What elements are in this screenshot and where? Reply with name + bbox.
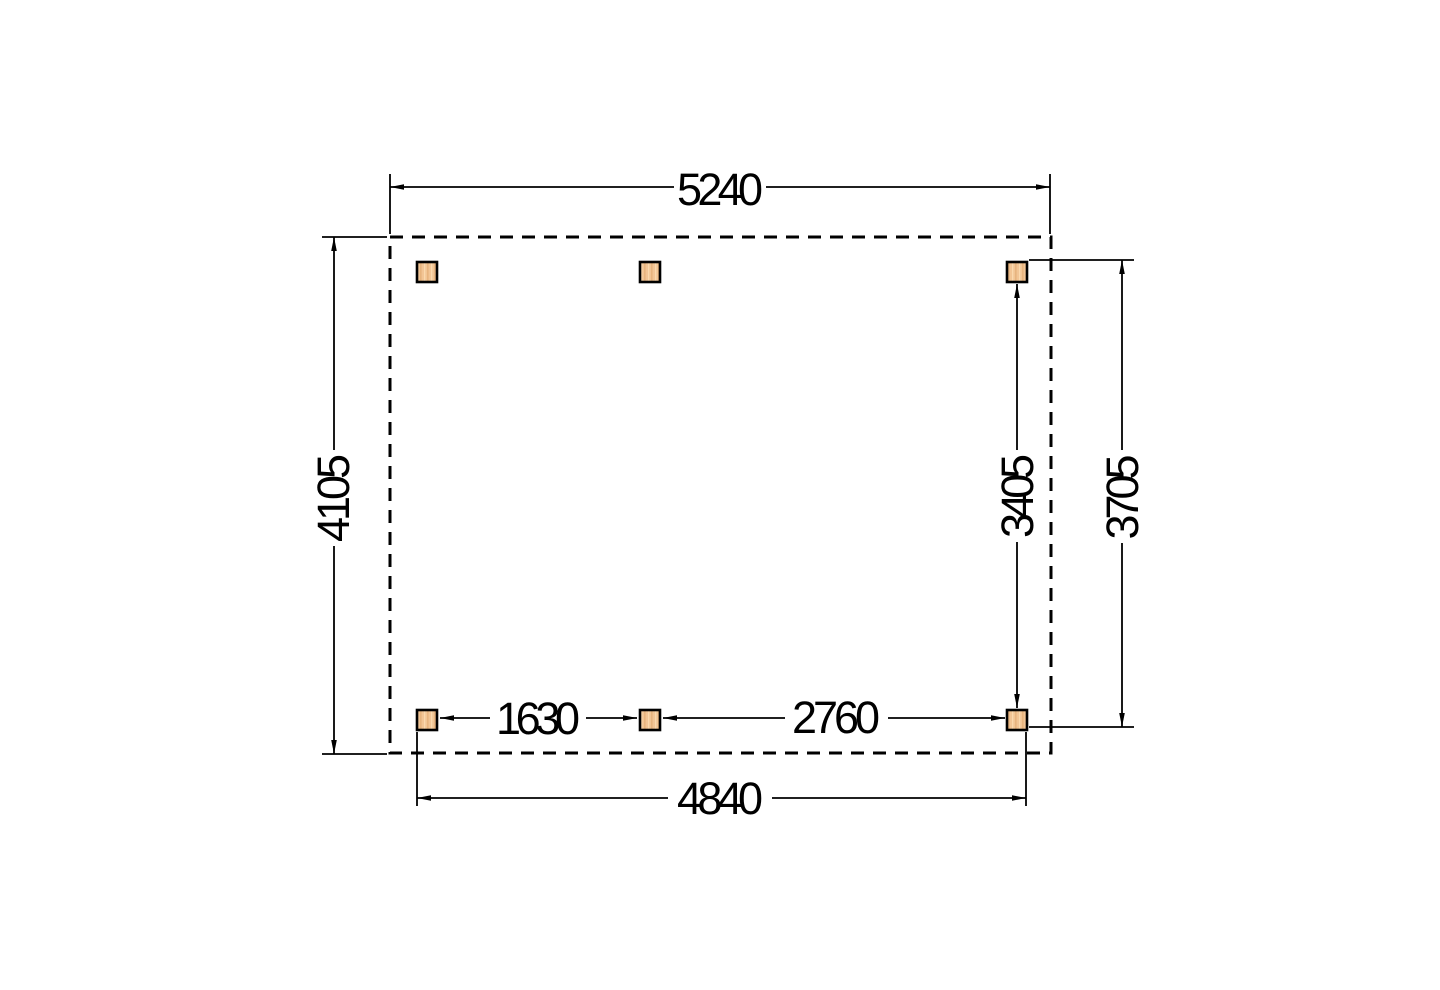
arrow-left-icon	[663, 715, 677, 721]
dim-label-bottom-width: 4840	[677, 773, 763, 824]
dim-label-left-depth: 4105	[308, 454, 359, 542]
post	[1007, 710, 1027, 730]
dim-label-top-width: 5240	[677, 164, 763, 215]
post	[640, 262, 660, 282]
arrow-right-icon	[623, 715, 637, 721]
post	[640, 710, 660, 730]
dim-label-right-post-span: 3405	[992, 454, 1043, 538]
dim-label-right-overall: 3705	[1097, 455, 1148, 540]
dim-label-bottom-span-right: 2760	[792, 692, 880, 743]
dim-label-bottom-span-left: 1630	[496, 693, 580, 744]
posts	[417, 262, 1027, 730]
post	[417, 710, 437, 730]
arrow-down-icon	[1119, 713, 1125, 727]
arrow-right-icon	[1036, 184, 1050, 190]
arrow-down-icon	[331, 740, 337, 754]
arrow-right-icon	[1012, 795, 1026, 801]
arrow-up-icon	[1119, 260, 1125, 274]
structure-outline	[390, 237, 1051, 753]
arrow-right-icon	[991, 715, 1005, 721]
arrow-up-icon	[1014, 284, 1020, 298]
arrow-left-icon	[390, 184, 404, 190]
arrow-down-icon	[1014, 694, 1020, 708]
blueprint-canvas: 5240 4105 3405 3705 1630 2760 4840	[0, 0, 1440, 990]
post	[1007, 262, 1027, 282]
arrow-up-icon	[331, 237, 337, 251]
post	[417, 262, 437, 282]
arrow-left-icon	[440, 715, 454, 721]
blueprint-svg: 5240 4105 3405 3705 1630 2760 4840	[0, 0, 1440, 990]
arrow-left-icon	[417, 795, 431, 801]
